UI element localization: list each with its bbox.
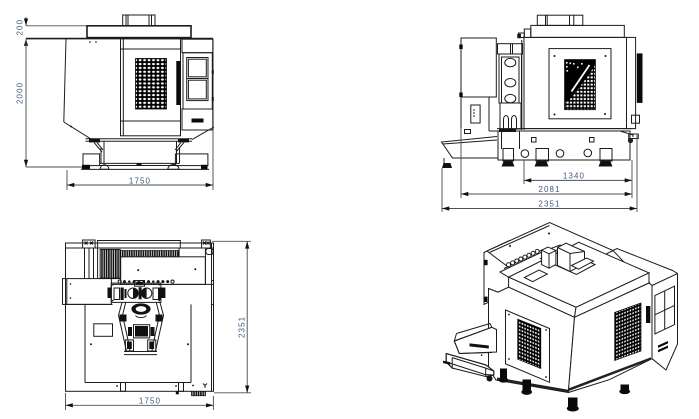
svg-text:2081: 2081 (538, 185, 560, 194)
svg-text:1750: 1750 (139, 396, 161, 405)
svg-text:1750: 1750 (129, 177, 151, 186)
svg-text:2000: 2000 (16, 82, 25, 104)
svg-text:2351: 2351 (237, 316, 246, 338)
svg-text:1340: 1340 (563, 172, 585, 181)
svg-text:200: 200 (16, 19, 25, 36)
svg-text:2351: 2351 (538, 200, 560, 209)
